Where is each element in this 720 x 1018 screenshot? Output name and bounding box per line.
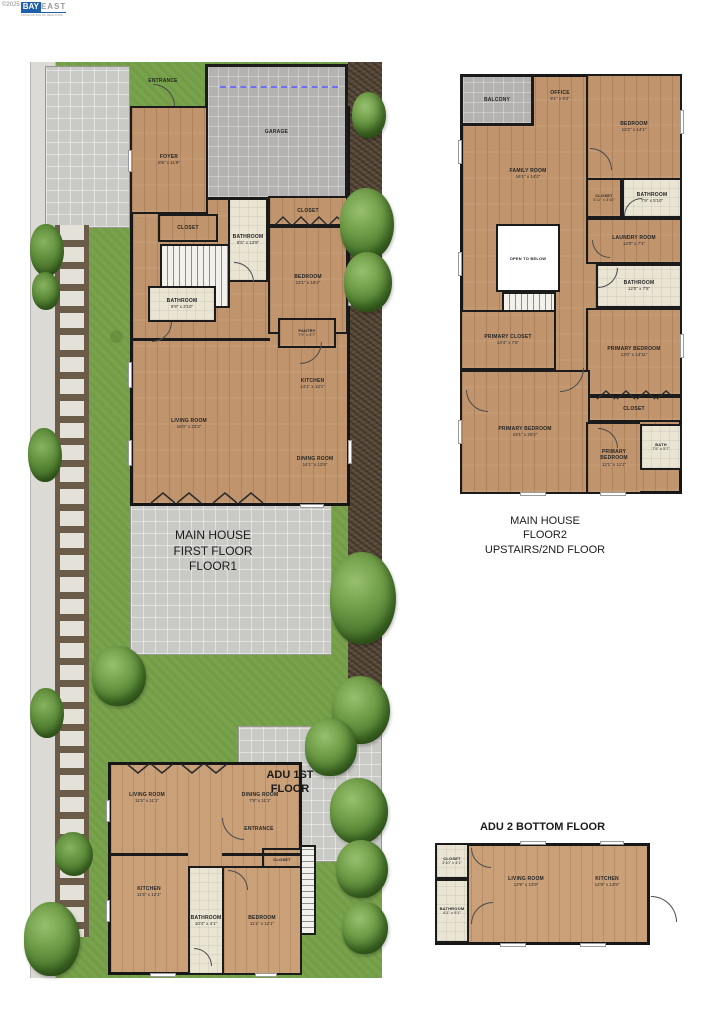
primary-closet-dims: 13'4" x 7'5" [497, 340, 519, 345]
interior-wall [108, 853, 188, 856]
living-room-dims: 16'0" x 23'3" [177, 424, 202, 429]
tree [352, 92, 386, 138]
adu1-living-room: LIVING ROOM 11'5" x 11'1" [116, 792, 178, 804]
bifold-door-icon [274, 216, 340, 226]
window [458, 140, 462, 164]
adu1-dining-room: DINING ROOM 7'9" x 11'1" [230, 792, 290, 804]
tree [330, 552, 396, 644]
rear-patio [130, 503, 332, 655]
bifold-patio-door-icon [212, 492, 264, 504]
floor1-entrance-label: ENTRANCE [133, 78, 193, 84]
window [106, 900, 110, 922]
floor2-balcony: BALCONY [460, 74, 534, 126]
pantry-dims: 7'9" x 4'7" [298, 333, 316, 338]
office-dims: 9'1" x 9'2" [550, 96, 570, 101]
foyer-dims: 8'6" x 11'9" [158, 160, 180, 165]
adu2-living-room: LIVING ROOM 13'9" x 13'9" [495, 876, 557, 888]
front-patio [45, 66, 130, 228]
adu2-bathroom: BATHROOM 6'1" x 9'1" [435, 879, 469, 943]
adu2-closet: CLOSET 3'10" x 4'1" [435, 843, 469, 879]
interior-wall [222, 853, 302, 856]
window [520, 492, 546, 496]
window [300, 504, 324, 508]
dining-room-dims: 7'9" x 11'1" [249, 798, 271, 803]
floor1-closet-left: CLOSET [158, 214, 218, 242]
window [600, 492, 626, 496]
floor2-title-line1: MAIN HOUSE [462, 514, 628, 528]
bush [30, 688, 64, 738]
watermark-logo: ©2025 BAY EAST ASSOCIATION OF REALTORS [2, 2, 66, 17]
window [128, 150, 132, 172]
adu2-kitchen: KITCHEN 12'9" x 13'9" [578, 876, 636, 888]
bathroom-dims: 12'0" x 7'5" [628, 286, 650, 291]
primary-bedroom-dims: 19'1" x 20'2" [513, 432, 538, 437]
window [680, 334, 684, 358]
window [580, 943, 606, 947]
floor1-dining-room: DINING ROOM 14'1" x 12'9" [286, 456, 344, 468]
tree [305, 718, 357, 776]
kitchen-dims: 12'9" x 13'9" [595, 882, 620, 887]
bathroom-dims: 10'4" x 4'1" [195, 921, 217, 926]
floorplan-sheet: GARAGE FOYER 8'6" x 11'9" ENTRANCE CLOSE… [0, 0, 720, 1018]
laundry-room-dims: 12'0" x 7'1" [623, 241, 645, 246]
garage-door-dashed-line [220, 86, 338, 88]
watermark-tagline: ASSOCIATION OF REALTORS [21, 12, 67, 17]
floor1-kitchen: KITCHEN 14'1" x 13'1" [285, 378, 340, 390]
bedroom-dims: 13'1" x 16'2" [296, 280, 321, 285]
window [106, 800, 110, 822]
floor2-office: OFFICE 9'1" x 9'2" [534, 90, 586, 102]
floor2-primary-bedroom-bottom: PRIMARY BEDROOM 12'1" x 11'1" [586, 422, 640, 494]
closet-dims: 5'11" x 3'10" [593, 198, 615, 203]
window [600, 841, 624, 845]
window [128, 440, 132, 466]
tree [342, 902, 388, 954]
closet-label: CLOSET [297, 208, 318, 214]
floor2-stairs [502, 292, 556, 312]
open-to-below-label: OPEN TO BELOW [510, 256, 547, 261]
window [500, 943, 526, 947]
bifold-door-icon [126, 763, 174, 774]
watermark-bay: BAY [21, 2, 41, 12]
floor1-title-line2: FIRST FLOOR [148, 544, 278, 560]
garage-label: GARAGE [265, 129, 288, 135]
floor1-title-line1: MAIN HOUSE [148, 528, 278, 544]
window [458, 420, 462, 444]
closet-label: CLOSET [273, 857, 290, 862]
floor1-bathroom-left: BATHROOM 9'9" x 3'10" [148, 286, 216, 322]
tree [330, 778, 388, 844]
floor2-family-room: FAMILY ROOM 16'1" x 14'2" [492, 168, 564, 180]
family-room-dims: 16'1" x 14'2" [516, 174, 541, 179]
floor2-primary-bedroom-right: PRIMARY BEDROOM 13'0" x 13'11" [586, 308, 682, 396]
kitchen-dims: 11'5" x 12'1" [137, 892, 161, 897]
living-room-dims: 11'5" x 11'1" [135, 798, 159, 803]
living-room-dims: 13'9" x 13'9" [514, 882, 539, 887]
window [520, 841, 546, 845]
tree [24, 902, 80, 976]
floor2-title-line3: UPSTAIRS/2ND FLOOR [462, 543, 628, 557]
floor1-living-room: LIVING ROOM 16'0" x 23'3" [158, 418, 220, 430]
bathroom-dims: 9'9" x 3'10" [171, 304, 193, 309]
watermark-copyright: ©2025 [2, 2, 20, 8]
primary-bedroom-dims: 12'1" x 11'1" [602, 462, 626, 467]
window [255, 973, 277, 977]
bedroom-dims: 12'2" x 14'1" [622, 127, 647, 132]
window [128, 362, 132, 388]
window [458, 252, 462, 276]
stepping-stone-walkway [55, 225, 89, 937]
tree [340, 188, 394, 260]
tree [336, 840, 388, 898]
bathroom-dims: 7'9" x 5'10" [641, 198, 663, 203]
watermark-east: EAST [41, 2, 66, 12]
tree [344, 252, 392, 312]
adu2-title: ADU 2 BOTTOM FLOOR [445, 820, 640, 834]
bathroom-dims: 5'5" x 13'9" [237, 240, 259, 245]
closet-dims: 3'10" x 4'1" [442, 861, 462, 866]
bush [32, 272, 60, 310]
primary-bedroom-dims: 13'0" x 13'11" [621, 352, 648, 357]
dining-room-dims: 14'1" x 12'9" [303, 462, 328, 467]
floor1-title: MAIN HOUSE FIRST FLOOR FLOOR1 [148, 528, 278, 575]
window [348, 440, 352, 464]
floor2-title: MAIN HOUSE FLOOR2 UPSTAIRS/2ND FLOOR [462, 514, 628, 557]
bifold-door-icon [180, 763, 228, 774]
bush [28, 428, 62, 482]
floor2-closet-small: CLOSET 5'11" x 3'10" [586, 178, 622, 218]
tree [92, 646, 146, 706]
bush [30, 224, 64, 276]
exterior-door-arc [651, 896, 677, 922]
floor2-bath-small: BATH 7'5" x 5'7" [640, 424, 682, 470]
floor1-garage: GARAGE [205, 64, 348, 200]
floor1-title-line3: FLOOR1 [148, 559, 278, 575]
bifold-door-icon [596, 390, 672, 400]
floor1-foyer: FOYER 8'6" x 11'9" [130, 106, 208, 214]
bath-dims: 7'5" x 5'7" [652, 447, 670, 452]
floor2-primary-closet: PRIMARY CLOSET 13'4" x 7'5" [460, 310, 556, 370]
adu-exterior-stairs [300, 845, 316, 935]
primary-bedroom-label: PRIMARY BEDROOM [588, 449, 640, 462]
window [150, 973, 176, 977]
closet-label: CLOSET [623, 406, 644, 412]
adu1-kitchen: KITCHEN 11'5" x 12'1" [118, 886, 180, 898]
bathroom-dims: 6'1" x 9'1" [443, 911, 461, 916]
bush [55, 832, 93, 876]
bedroom-dims: 11'1" x 12'1" [250, 921, 274, 926]
window [680, 110, 684, 134]
watermark-brand: BAY EAST ASSOCIATION OF REALTORS [21, 2, 67, 17]
closet-label: CLOSET [177, 225, 198, 231]
interior-wall [130, 338, 270, 341]
kitchen-dims: 14'1" x 13'1" [300, 384, 325, 389]
balcony-label: BALCONY [484, 97, 510, 103]
floor2-title-line2: FLOOR2 [462, 528, 628, 542]
floor2-open-to-below: OPEN TO BELOW [496, 224, 560, 292]
bifold-patio-door-icon [150, 492, 202, 504]
